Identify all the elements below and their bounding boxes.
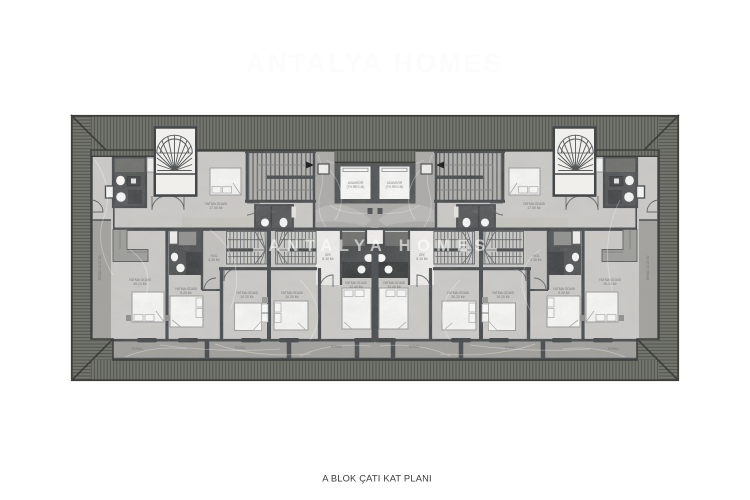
svg-text:ANTALYA HOMES: ANTALYA HOMES — [246, 48, 504, 78]
svg-text:A BLOK ÇATI KAT PLANI: A BLOK ÇATI KAT PLANI — [322, 474, 432, 484]
svg-text:ANTALYA HOMES: ANTALYA HOMES — [268, 237, 492, 255]
